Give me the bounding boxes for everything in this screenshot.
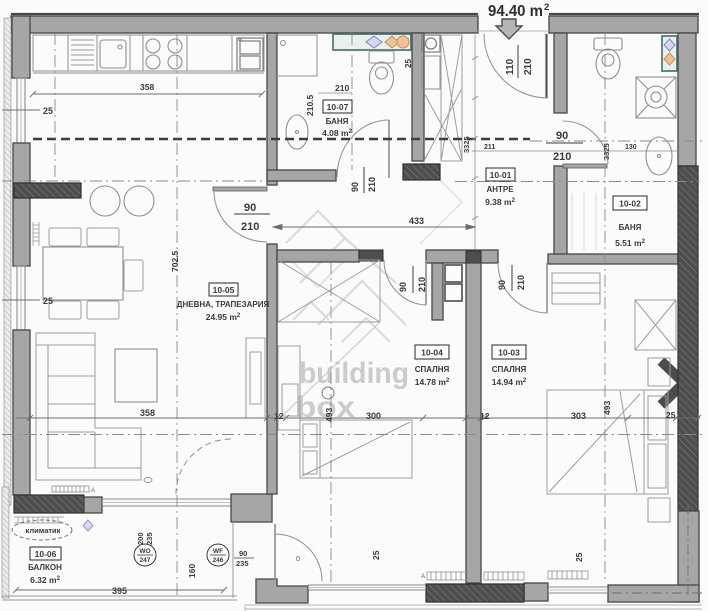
svg-text:WF: WF — [213, 548, 223, 555]
svg-text:building: building — [299, 357, 409, 390]
svg-text:210.5: 210.5 — [305, 94, 315, 116]
svg-text:210: 210 — [523, 58, 534, 75]
svg-text:WO: WO — [139, 548, 150, 555]
svg-text:358: 358 — [140, 82, 154, 92]
svg-text:A: A — [91, 488, 95, 494]
svg-text:303: 303 — [571, 411, 586, 421]
svg-text:АНТРЕ: АНТРЕ — [486, 185, 514, 194]
svg-text:БАНЯ: БАНЯ — [326, 117, 349, 126]
svg-text:4.08 m2: 4.08 m2 — [322, 128, 352, 138]
svg-text:94.40 m: 94.40 m — [488, 3, 543, 20]
svg-text:A: A — [421, 574, 425, 580]
svg-text:300: 300 — [366, 411, 381, 421]
svg-text:200: 200 — [136, 532, 145, 545]
svg-text:25: 25 — [666, 410, 676, 420]
svg-text:СПАЛНЯ: СПАЛНЯ — [415, 365, 450, 374]
svg-text:110: 110 — [505, 58, 516, 75]
svg-text:25: 25 — [43, 296, 53, 306]
svg-text:235: 235 — [236, 559, 249, 568]
svg-text:9.38 m2: 9.38 m2 — [485, 197, 515, 207]
svg-text:10-07: 10-07 — [327, 102, 349, 112]
svg-text:702.5: 702.5 — [170, 250, 180, 272]
svg-text:210: 210 — [241, 221, 259, 233]
svg-text:25: 25 — [404, 59, 413, 68]
svg-text:СПАЛНЯ: СПАЛНЯ — [492, 365, 527, 374]
svg-text:3325: 3325 — [462, 136, 471, 153]
svg-text:10-03: 10-03 — [498, 348, 520, 358]
svg-text:90: 90 — [350, 182, 360, 192]
svg-text:160: 160 — [187, 564, 197, 578]
svg-text:235: 235 — [145, 532, 154, 545]
svg-text:БАНЯ: БАНЯ — [619, 223, 642, 232]
svg-text:493: 493 — [324, 408, 334, 422]
svg-text:0: 0 — [296, 556, 300, 563]
svg-text:ДНЕВНА, ТРАПЕЗАРИЯ: ДНЕВНА, ТРАПЕЗАРИЯ — [177, 300, 270, 309]
svg-text:90: 90 — [239, 549, 247, 558]
svg-text:395: 395 — [112, 586, 127, 596]
svg-text:10-02: 10-02 — [619, 199, 641, 209]
svg-text:2: 2 — [544, 2, 549, 13]
svg-text:климатик: климатик — [26, 526, 61, 535]
svg-text:6.32 m2: 6.32 m2 — [30, 575, 60, 585]
svg-text:211: 211 — [484, 144, 495, 151]
svg-text:10-06: 10-06 — [35, 549, 57, 559]
svg-text:25: 25 — [371, 550, 381, 560]
svg-text:БАЛКОН: БАЛКОН — [28, 563, 62, 572]
svg-text:493: 493 — [602, 401, 612, 415]
svg-text:90: 90 — [244, 202, 256, 214]
svg-text:25: 25 — [43, 106, 53, 116]
svg-text:210: 210 — [367, 177, 377, 192]
svg-text:10-01: 10-01 — [490, 170, 512, 180]
svg-text:24.95 m2: 24.95 m2 — [206, 312, 241, 322]
svg-text:3325: 3325 — [602, 143, 611, 160]
svg-text:358: 358 — [140, 408, 155, 418]
svg-text:210: 210 — [335, 83, 349, 93]
svg-text:246: 246 — [213, 557, 224, 564]
svg-text:12: 12 — [274, 411, 284, 421]
svg-text:10-04: 10-04 — [421, 348, 443, 358]
svg-text:14.78 m2: 14.78 m2 — [415, 377, 450, 387]
svg-text:210: 210 — [417, 277, 427, 292]
svg-text:14.94 m2: 14.94 m2 — [492, 377, 527, 387]
svg-text:90: 90 — [398, 282, 408, 292]
svg-text:210: 210 — [516, 275, 526, 290]
svg-text:210: 210 — [553, 151, 571, 163]
svg-text:90: 90 — [556, 130, 568, 142]
svg-text:25: 25 — [574, 552, 584, 562]
svg-text:130: 130 — [625, 144, 637, 151]
svg-text:12: 12 — [480, 411, 490, 421]
svg-text:433: 433 — [409, 216, 424, 226]
svg-text:90: 90 — [497, 280, 507, 290]
svg-text:10-05: 10-05 — [213, 285, 235, 295]
svg-text:247: 247 — [140, 557, 151, 564]
svg-text:5.51 m2: 5.51 m2 — [615, 238, 645, 248]
